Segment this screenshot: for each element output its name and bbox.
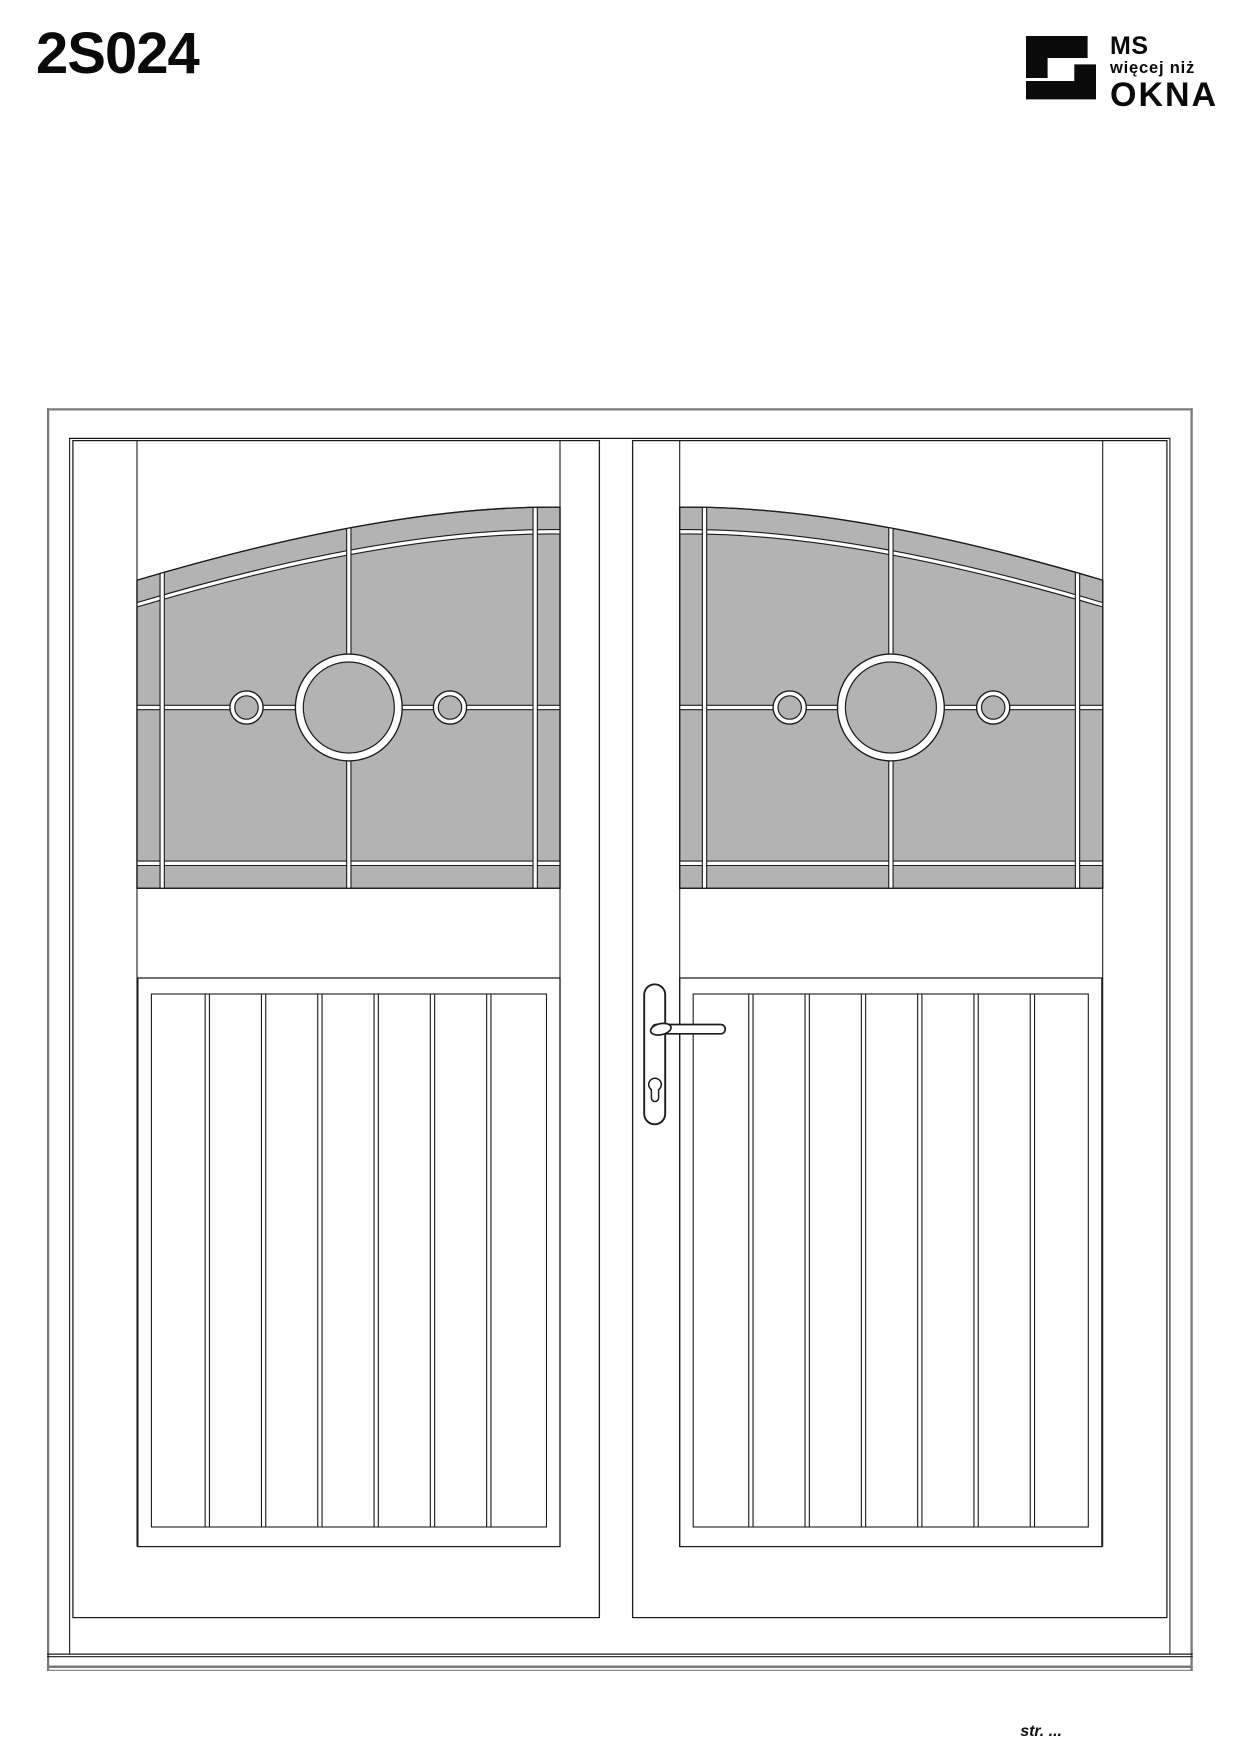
handle-backplate — [644, 984, 665, 1124]
page-number-footer: str. ... — [1020, 1722, 1062, 1741]
lower-plank-panel — [138, 978, 560, 1547]
door-technical-drawing — [0, 0, 1240, 1755]
right-door-leaf-interior — [680, 441, 1103, 1547]
left-door-leaf-interior — [137, 441, 560, 1547]
door-handle — [644, 984, 725, 1124]
door-threshold — [47, 1654, 1193, 1670]
